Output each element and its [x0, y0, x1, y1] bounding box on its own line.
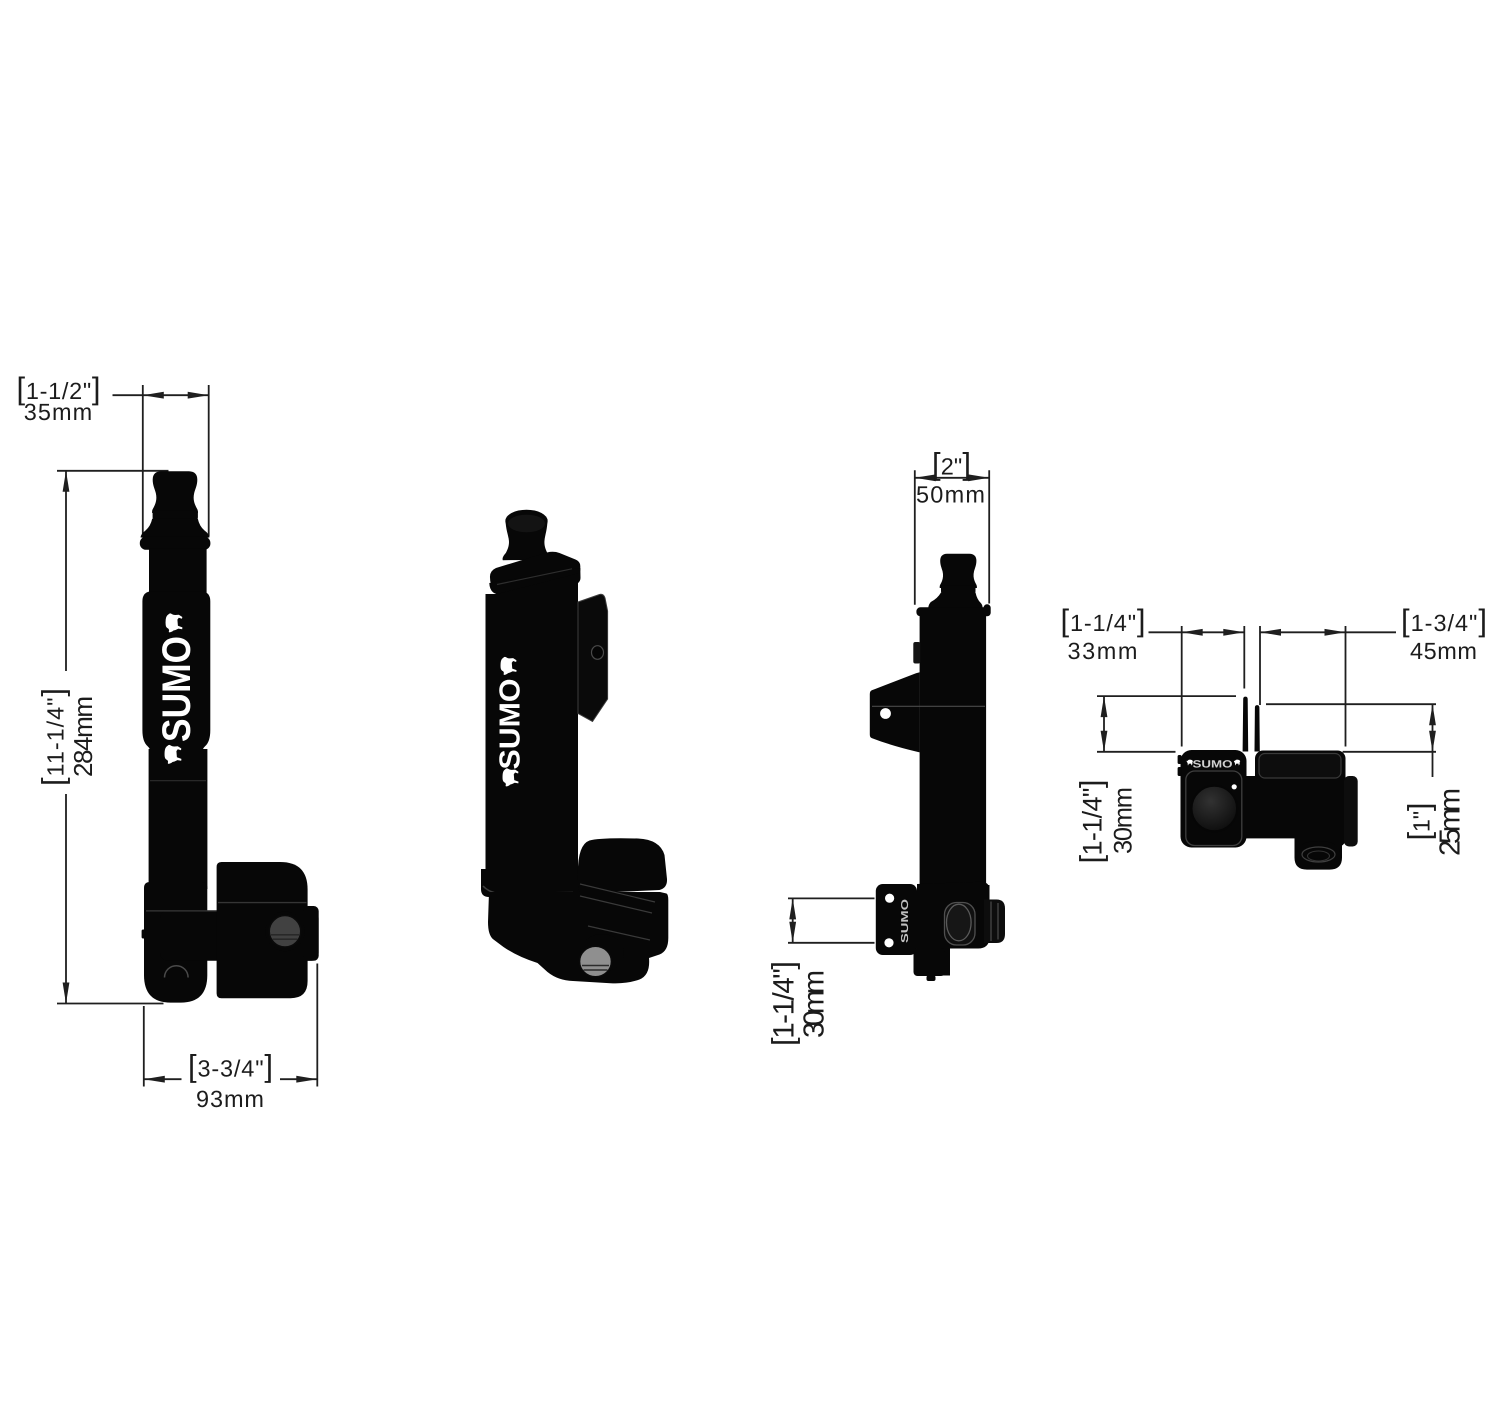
svg-text:30mm: 30mm	[799, 970, 831, 1038]
svg-text:50mm: 50mm	[916, 482, 985, 508]
svg-text:25mm: 25mm	[1435, 788, 1467, 856]
svg-text:SUMO: SUMO	[495, 679, 527, 770]
svg-text:33mm: 33mm	[1068, 638, 1138, 664]
svg-text:SUMO: SUMO	[1193, 759, 1233, 771]
svg-text:45mm: 45mm	[1410, 638, 1477, 664]
svg-text:[1-1/4"]: [1-1/4"]	[766, 961, 801, 1046]
svg-text:93mm: 93mm	[196, 1086, 264, 1112]
svg-text:[1-1/4"]: [1-1/4"]	[1074, 780, 1109, 864]
svg-text:284mm: 284mm	[68, 696, 98, 777]
svg-text:30mm: 30mm	[1110, 787, 1138, 854]
svg-text:SUMO: SUMO	[155, 636, 199, 742]
svg-text:35mm: 35mm	[24, 399, 93, 425]
svg-text:SUMO: SUMO	[900, 899, 911, 943]
